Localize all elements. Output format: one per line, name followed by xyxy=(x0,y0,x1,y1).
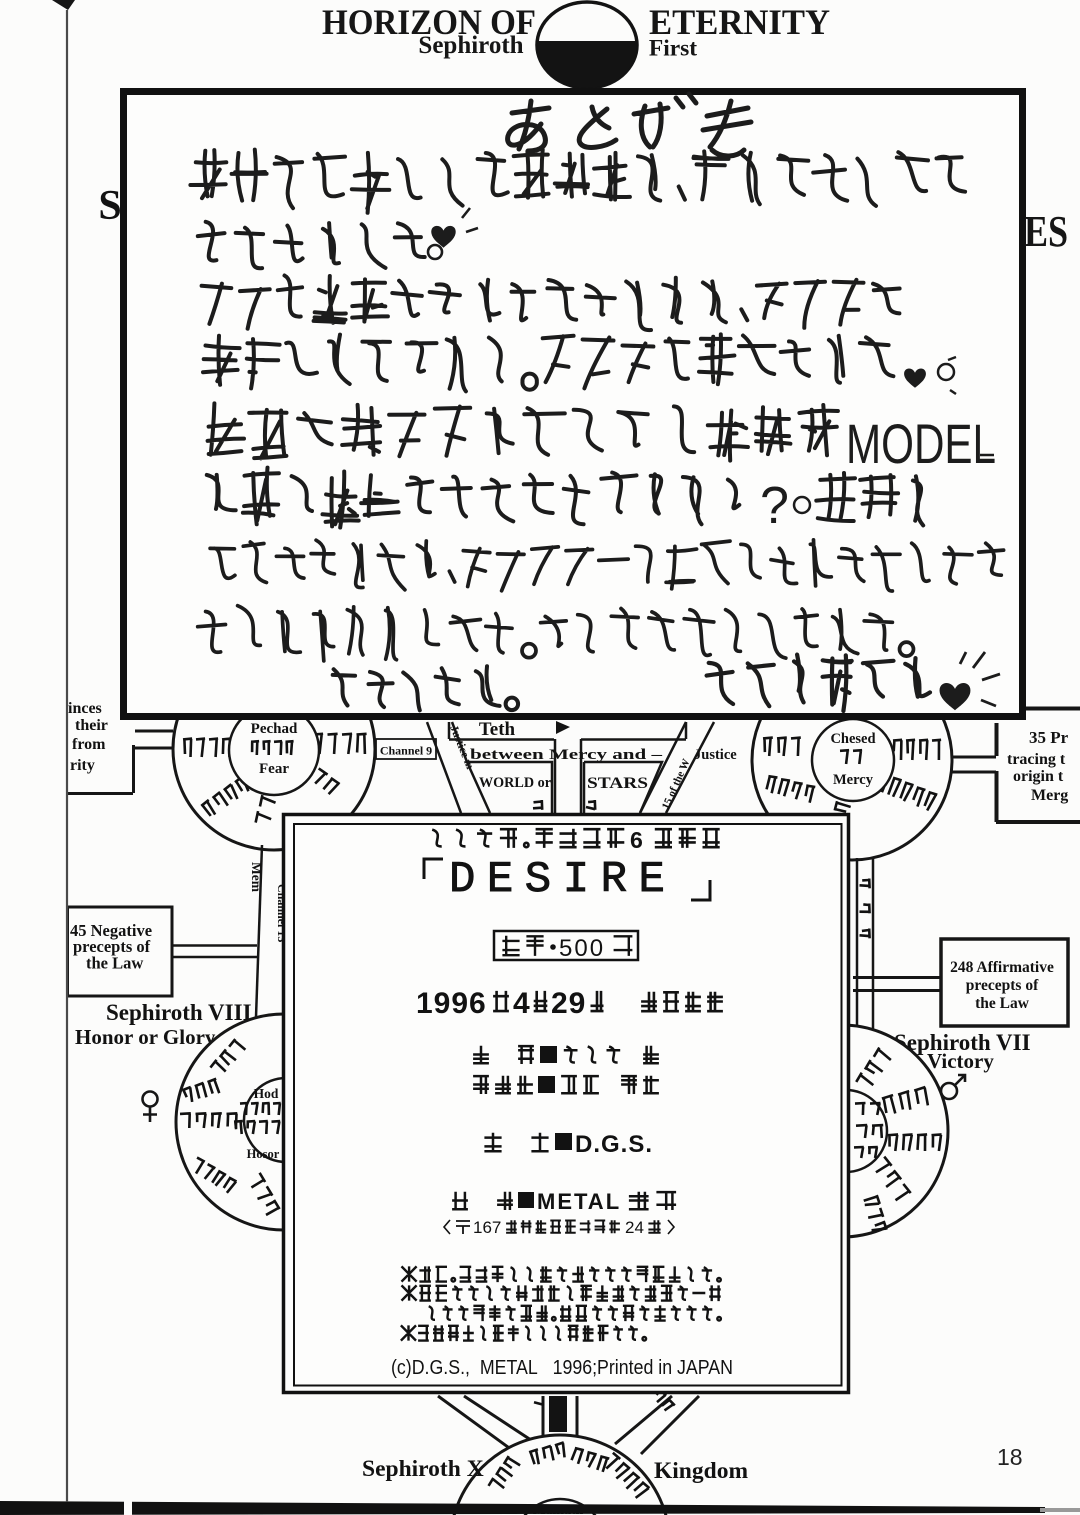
svg-text:the Law: the Law xyxy=(975,995,1030,1012)
svg-text:the Law: the Law xyxy=(86,954,143,973)
svg-text:18: 18 xyxy=(997,1444,1023,1470)
svg-text:Justice: Justice xyxy=(694,747,737,763)
svg-text:Fear: Fear xyxy=(259,761,289,777)
svg-text:Sephiroth: Sephiroth xyxy=(418,32,523,59)
svg-text:Channel 9: Channel 9 xyxy=(380,744,432,758)
svg-text:WORLD or: WORLD or xyxy=(479,775,551,791)
svg-text:Sephiroth X: Sephiroth X xyxy=(362,1456,484,1482)
svg-text:24: 24 xyxy=(625,1218,644,1237)
svg-text:MODEL: MODEL xyxy=(846,412,996,475)
svg-text:Victory: Victory xyxy=(927,1049,994,1073)
svg-text:Merg: Merg xyxy=(1031,787,1068,804)
svg-text:6: 6 xyxy=(630,827,643,853)
svg-text:(c)D.G.S., METAL 1996;Print: (c)D.G.S., METAL 1996;Printed in JAPAN xyxy=(391,1356,733,1379)
svg-text:STARS: STARS xyxy=(587,775,648,792)
svg-text:First: First xyxy=(649,36,697,62)
svg-text:inces: inces xyxy=(68,700,102,717)
svg-text:DESIRE: DESIRE xyxy=(449,855,676,905)
svg-text:tracing t: tracing t xyxy=(1007,751,1066,768)
svg-text:S: S xyxy=(98,183,121,229)
svg-text:their: their xyxy=(75,717,108,734)
svg-text:rity: rity xyxy=(70,757,95,774)
svg-text:35 Pr: 35 Pr xyxy=(1029,728,1069,747)
svg-text:Sephiroth VIII: Sephiroth VIII xyxy=(106,1000,252,1025)
svg-text:Kingdom: Kingdom xyxy=(654,1458,748,1484)
svg-text:ES: ES xyxy=(1024,207,1068,256)
svg-text:D.G.S.: D.G.S. xyxy=(575,1131,653,1158)
svg-text:Hod: Hod xyxy=(254,1086,279,1101)
svg-text:Pechad: Pechad xyxy=(251,721,298,737)
svg-text:Chesed: Chesed xyxy=(830,731,875,747)
svg-text:29: 29 xyxy=(551,987,586,1020)
svg-text:500: 500 xyxy=(559,935,605,962)
svg-text:1996: 1996 xyxy=(416,987,487,1020)
svg-text:Mercy: Mercy xyxy=(833,772,874,788)
svg-text:precepts of: precepts of xyxy=(966,977,1039,994)
svg-text:origin t: origin t xyxy=(1013,768,1064,785)
svg-text:Hosor: Hosor xyxy=(247,1147,280,1161)
svg-text:?: ? xyxy=(760,477,789,535)
svg-text:Teth: Teth xyxy=(479,719,516,740)
svg-text:METAL: METAL xyxy=(537,1189,621,1214)
svg-text:from: from xyxy=(72,736,106,753)
svg-text:167: 167 xyxy=(473,1218,501,1237)
svg-text:4: 4 xyxy=(513,987,530,1020)
svg-text:248 Affirmative: 248 Affirmative xyxy=(950,959,1054,976)
svg-text:Mem: Mem xyxy=(249,862,264,893)
svg-text:between Mercy and –: between Mercy and – xyxy=(470,747,663,763)
svg-text:Honor or Glory: Honor or Glory xyxy=(75,1025,216,1049)
